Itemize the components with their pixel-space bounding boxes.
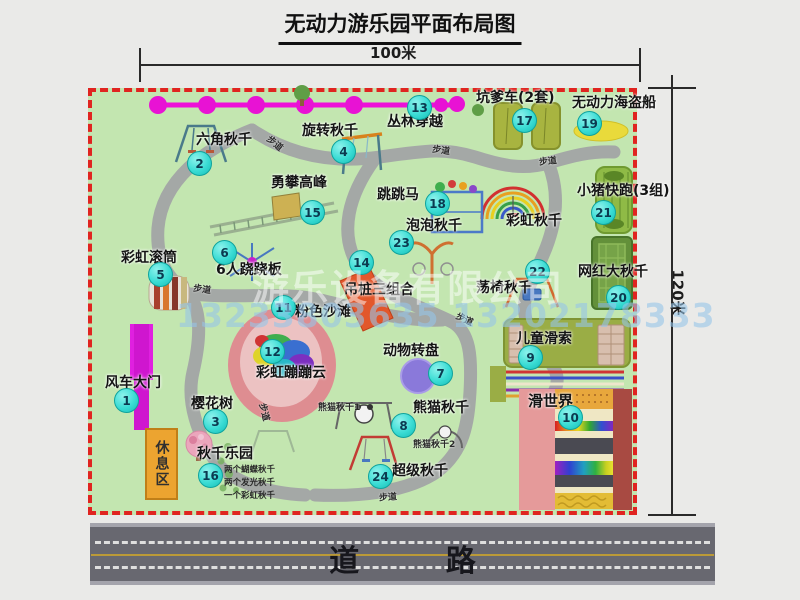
rainbow-swing-label: 彩虹秋千 — [506, 214, 562, 228]
attraction-11-badge: 11 — [271, 295, 296, 320]
attraction-16-badge: 16 — [198, 463, 223, 488]
attraction-6-label: 6人跷跷板 — [216, 263, 282, 277]
swing-park-detail-1: 两个蝴蝶秋千 — [224, 464, 275, 477]
park-map-page: 无动力游乐园平面布局图 100米 120米 — [0, 0, 800, 600]
attraction-10-badge: 10 — [558, 405, 583, 430]
road-label: 道 路 — [90, 536, 715, 580]
attraction-15-badge: 15 — [300, 200, 325, 225]
attraction-3-badge: 3 — [203, 409, 228, 434]
attraction-4-label: 旋转秋千 — [302, 124, 358, 138]
swing-park-detail-2: 两个发光秋千 — [224, 477, 275, 490]
attraction-24-label: 超级秋千 — [392, 464, 448, 478]
attraction-18-badge: 18 — [425, 191, 450, 216]
footpath-label: 步道 — [539, 157, 558, 168]
attraction-14-label: 吊桩三组合 — [344, 283, 414, 297]
attraction-24-badge: 24 — [368, 464, 393, 489]
attraction-2-label: 六角秋千 — [196, 133, 252, 147]
attraction-23-label: 泡泡秋千 — [406, 219, 462, 233]
attraction-17-badge: 17 — [512, 108, 537, 133]
attraction-12-badge: 12 — [260, 339, 285, 364]
attraction-11-label: 粉色沙滩 — [295, 305, 351, 319]
attraction-6-badge: 6 — [212, 240, 237, 265]
attraction-1-badge: 1 — [114, 388, 139, 413]
attraction-8-badge: 8 — [391, 413, 416, 438]
attraction-5-label: 彩虹滚筒 — [121, 251, 177, 265]
page-title: 无动力游乐园平面布局图 — [279, 8, 522, 45]
swing-park-detail-3: 一个彩虹秋千 — [224, 490, 275, 503]
attraction-21-badge: 21 — [591, 200, 616, 225]
attraction-7-label: 动物转盘 — [383, 344, 439, 358]
attraction-16-label: 秋千乐园 — [197, 447, 253, 461]
attraction-13-badge: 13 — [407, 95, 432, 120]
attraction-21-label: 小猪快跑(3组) — [577, 184, 670, 198]
attraction-19-label: 无动力海盗船 — [572, 96, 656, 110]
attraction-20-label: 网红大秋千 — [578, 265, 648, 279]
rest-area-label: 休息区 — [152, 440, 172, 488]
attraction-4-badge: 4 — [331, 139, 356, 164]
attraction-23-badge: 23 — [389, 230, 414, 255]
attraction-9-label: 儿童滑索 — [516, 332, 572, 346]
attraction-18-label: 跳跳马 — [377, 188, 419, 202]
attraction-15-label: 勇攀高峰 — [271, 176, 327, 190]
attraction-22-label: 荡椅秋千 — [476, 281, 532, 295]
attraction-22-badge: 22 — [525, 259, 550, 284]
height-dimension-label: 120米 — [668, 269, 689, 315]
attraction-17-label: 坑爹车(2套) — [476, 91, 555, 105]
attraction-14-badge: 14 — [349, 250, 374, 275]
width-dimension-label: 100米 — [370, 42, 416, 63]
attraction-1-label: 风车大门 — [105, 376, 161, 390]
attraction-19-badge: 19 — [577, 111, 602, 136]
attraction-8-label: 熊猫秋千 — [413, 401, 469, 415]
attraction-7-badge: 7 — [428, 361, 453, 386]
panda-swing-1-label: 熊猫秋千1 — [318, 404, 360, 413]
attraction-2-badge: 2 — [187, 151, 212, 176]
attraction-9-badge: 9 — [518, 345, 543, 370]
panda-swing-2-label: 熊猫秋千2 — [413, 441, 455, 450]
attraction-20-badge: 20 — [606, 285, 631, 310]
attraction-12-label: 彩虹蹦蹦云 — [256, 366, 326, 380]
attraction-5-badge: 5 — [148, 262, 173, 287]
rest-area-box: 休息区 — [145, 428, 178, 500]
footpath-label: 步道 — [379, 493, 398, 503]
